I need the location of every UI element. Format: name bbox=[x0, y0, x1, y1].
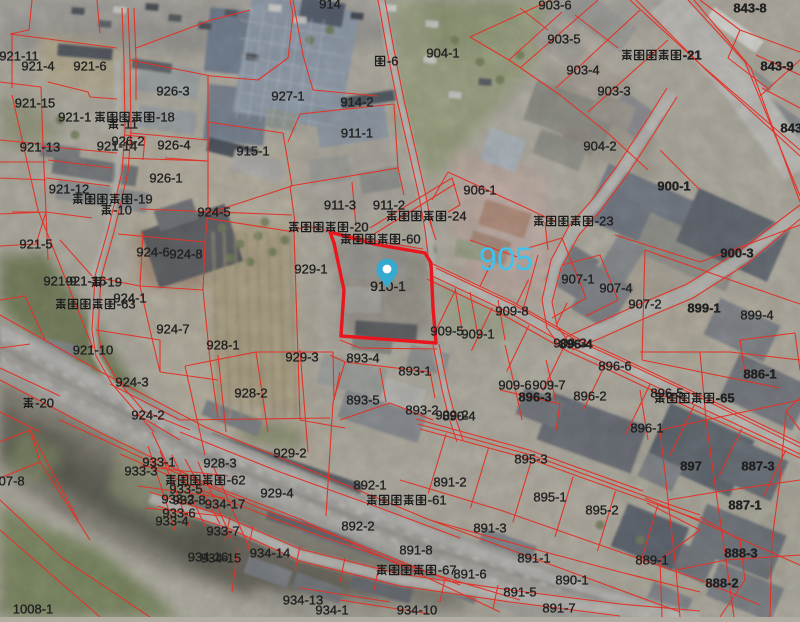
svg-text:921-5: 921-5 bbox=[19, 237, 52, 252]
svg-text:921-15: 921-15 bbox=[15, 96, 55, 111]
svg-text:900-1: 900-1 bbox=[657, 179, 690, 194]
svg-text:928-1: 928-1 bbox=[206, 338, 239, 353]
svg-text:-67: -67 bbox=[438, 563, 457, 578]
svg-text:909-5: 909-5 bbox=[430, 324, 463, 339]
svg-text:928-2: 928-2 bbox=[234, 386, 267, 401]
svg-text:933-3: 933-3 bbox=[124, 464, 157, 479]
svg-text:921-1: 921-1 bbox=[58, 110, 91, 125]
svg-text:887-1: 887-1 bbox=[728, 498, 761, 513]
svg-text:1008-1: 1008-1 bbox=[13, 602, 53, 617]
svg-text:933-4: 933-4 bbox=[155, 514, 188, 529]
svg-text:929-2: 929-2 bbox=[273, 446, 306, 461]
svg-text:909-8: 909-8 bbox=[495, 304, 528, 319]
svg-text:893-4: 893-4 bbox=[346, 351, 379, 366]
svg-text:899-1: 899-1 bbox=[687, 301, 720, 316]
svg-text:-61: -61 bbox=[428, 493, 447, 508]
svg-text:909-7: 909-7 bbox=[532, 378, 565, 393]
svg-text:929-4: 929-4 bbox=[260, 486, 293, 501]
svg-text:-23: -23 bbox=[595, 214, 614, 229]
svg-text:889-1: 889-1 bbox=[635, 553, 668, 568]
svg-text:915-1: 915-1 bbox=[236, 144, 269, 159]
svg-text:-65: -65 bbox=[716, 391, 735, 406]
svg-text:-60: -60 bbox=[402, 232, 421, 247]
svg-text:-19: -19 bbox=[103, 275, 122, 290]
svg-text:909-1: 909-1 bbox=[461, 327, 494, 342]
svg-text:893-1: 893-1 bbox=[398, 364, 431, 379]
svg-text:907-8: 907-8 bbox=[0, 474, 25, 489]
svg-text:891-3: 891-3 bbox=[473, 521, 506, 536]
svg-text:891-5: 891-5 bbox=[503, 585, 536, 600]
svg-text:892-1: 892-1 bbox=[353, 478, 386, 493]
svg-text:895-3: 895-3 bbox=[514, 452, 547, 467]
svg-text:896-6: 896-6 bbox=[598, 359, 631, 374]
svg-text:-19: -19 bbox=[134, 192, 153, 207]
svg-text:929-3: 929-3 bbox=[285, 350, 318, 365]
svg-text:896-2: 896-2 bbox=[573, 389, 606, 404]
svg-text:-6: -6 bbox=[387, 54, 399, 69]
svg-text:903-3: 903-3 bbox=[597, 84, 630, 99]
svg-text:924-6: 924-6 bbox=[136, 245, 169, 260]
svg-text:921-12: 921-12 bbox=[49, 182, 89, 197]
svg-text:934-1: 934-1 bbox=[315, 603, 348, 617]
svg-text:921-4: 921-4 bbox=[21, 59, 54, 74]
svg-text:900-3: 900-3 bbox=[720, 246, 753, 261]
svg-text:890-4: 890-4 bbox=[442, 409, 475, 424]
svg-text:903-6: 903-6 bbox=[538, 0, 571, 13]
svg-text:903-4: 903-4 bbox=[566, 63, 599, 78]
svg-text:891-8: 891-8 bbox=[399, 543, 432, 558]
svg-text:899-4: 899-4 bbox=[740, 308, 773, 323]
svg-text:888-3: 888-3 bbox=[724, 546, 757, 561]
svg-text:904-2: 904-2 bbox=[583, 139, 616, 154]
svg-text:896-1: 896-1 bbox=[630, 421, 663, 436]
svg-text:907-1: 907-1 bbox=[561, 272, 594, 287]
svg-text:888-2: 888-2 bbox=[705, 576, 738, 591]
svg-text:906-1: 906-1 bbox=[463, 183, 496, 198]
svg-text:921-13: 921-13 bbox=[20, 140, 60, 155]
svg-text:887-3: 887-3 bbox=[741, 459, 774, 474]
svg-text:-20: -20 bbox=[350, 220, 369, 235]
svg-text:924-8: 924-8 bbox=[169, 247, 202, 262]
svg-text:926-4: 926-4 bbox=[157, 138, 190, 153]
svg-text:929-1: 929-1 bbox=[294, 262, 327, 277]
svg-text:891-7: 891-7 bbox=[542, 601, 575, 616]
svg-text:907-2: 907-2 bbox=[628, 297, 661, 312]
svg-text:934-15: 934-15 bbox=[201, 551, 241, 566]
svg-text:914: 914 bbox=[319, 0, 341, 12]
svg-text:891-2: 891-2 bbox=[433, 475, 466, 490]
svg-text:921-10: 921-10 bbox=[73, 343, 113, 358]
svg-text:843-9: 843-9 bbox=[760, 59, 793, 74]
svg-text:907-4: 907-4 bbox=[599, 281, 632, 296]
svg-text:843-1: 843-1 bbox=[780, 121, 800, 136]
svg-text:897: 897 bbox=[680, 459, 702, 474]
svg-text:896-4: 896-4 bbox=[559, 337, 593, 352]
svg-text:914-2: 914-2 bbox=[340, 95, 373, 110]
svg-text:891-6: 891-6 bbox=[453, 567, 486, 582]
svg-text:843-8: 843-8 bbox=[733, 1, 766, 16]
svg-text:903-5: 903-5 bbox=[547, 32, 580, 47]
svg-text:928-3: 928-3 bbox=[203, 456, 236, 471]
svg-text:924-2: 924-2 bbox=[131, 408, 164, 423]
svg-text:-11: -11 bbox=[120, 117, 138, 132]
svg-text:921-6: 921-6 bbox=[73, 59, 106, 74]
svg-text:934-10: 934-10 bbox=[397, 603, 437, 617]
svg-text:934-14: 934-14 bbox=[250, 546, 290, 561]
svg-text:911-3: 911-3 bbox=[324, 198, 356, 213]
svg-text:-62: -62 bbox=[227, 473, 246, 488]
svg-text:924-7: 924-7 bbox=[156, 322, 189, 337]
svg-text:924-5: 924-5 bbox=[197, 205, 230, 220]
svg-text:-24: -24 bbox=[448, 209, 467, 224]
svg-text:924-3: 924-3 bbox=[115, 375, 148, 390]
svg-text:933-7: 933-7 bbox=[206, 524, 239, 539]
svg-text:904-1: 904-1 bbox=[426, 46, 459, 61]
svg-text:893-2: 893-2 bbox=[405, 403, 438, 418]
svg-text:934-17: 934-17 bbox=[205, 497, 245, 512]
svg-text:-63: -63 bbox=[117, 297, 136, 312]
svg-text:895-2: 895-2 bbox=[585, 503, 618, 518]
svg-text:911-1: 911-1 bbox=[341, 126, 373, 141]
svg-text:-20: -20 bbox=[35, 396, 54, 411]
svg-text:-21: -21 bbox=[683, 48, 702, 63]
svg-text:-18: -18 bbox=[156, 110, 175, 125]
svg-text:926-2: 926-2 bbox=[111, 134, 144, 149]
svg-text:891-1: 891-1 bbox=[517, 551, 550, 566]
svg-text:-10: -10 bbox=[113, 203, 132, 218]
svg-text:890-1: 890-1 bbox=[555, 573, 588, 588]
svg-text:927-1: 927-1 bbox=[271, 89, 304, 104]
svg-text:886-1: 886-1 bbox=[743, 367, 776, 382]
svg-text:895-1: 895-1 bbox=[533, 490, 566, 505]
svg-text:905: 905 bbox=[479, 241, 533, 277]
svg-text:926-1: 926-1 bbox=[149, 171, 182, 186]
svg-text:892-2: 892-2 bbox=[341, 519, 374, 534]
svg-text:926-3: 926-3 bbox=[156, 84, 189, 99]
svg-text:893-5: 893-5 bbox=[346, 393, 379, 408]
svg-text:909-6: 909-6 bbox=[498, 378, 531, 393]
svg-text:911-2: 911-2 bbox=[373, 198, 405, 213]
